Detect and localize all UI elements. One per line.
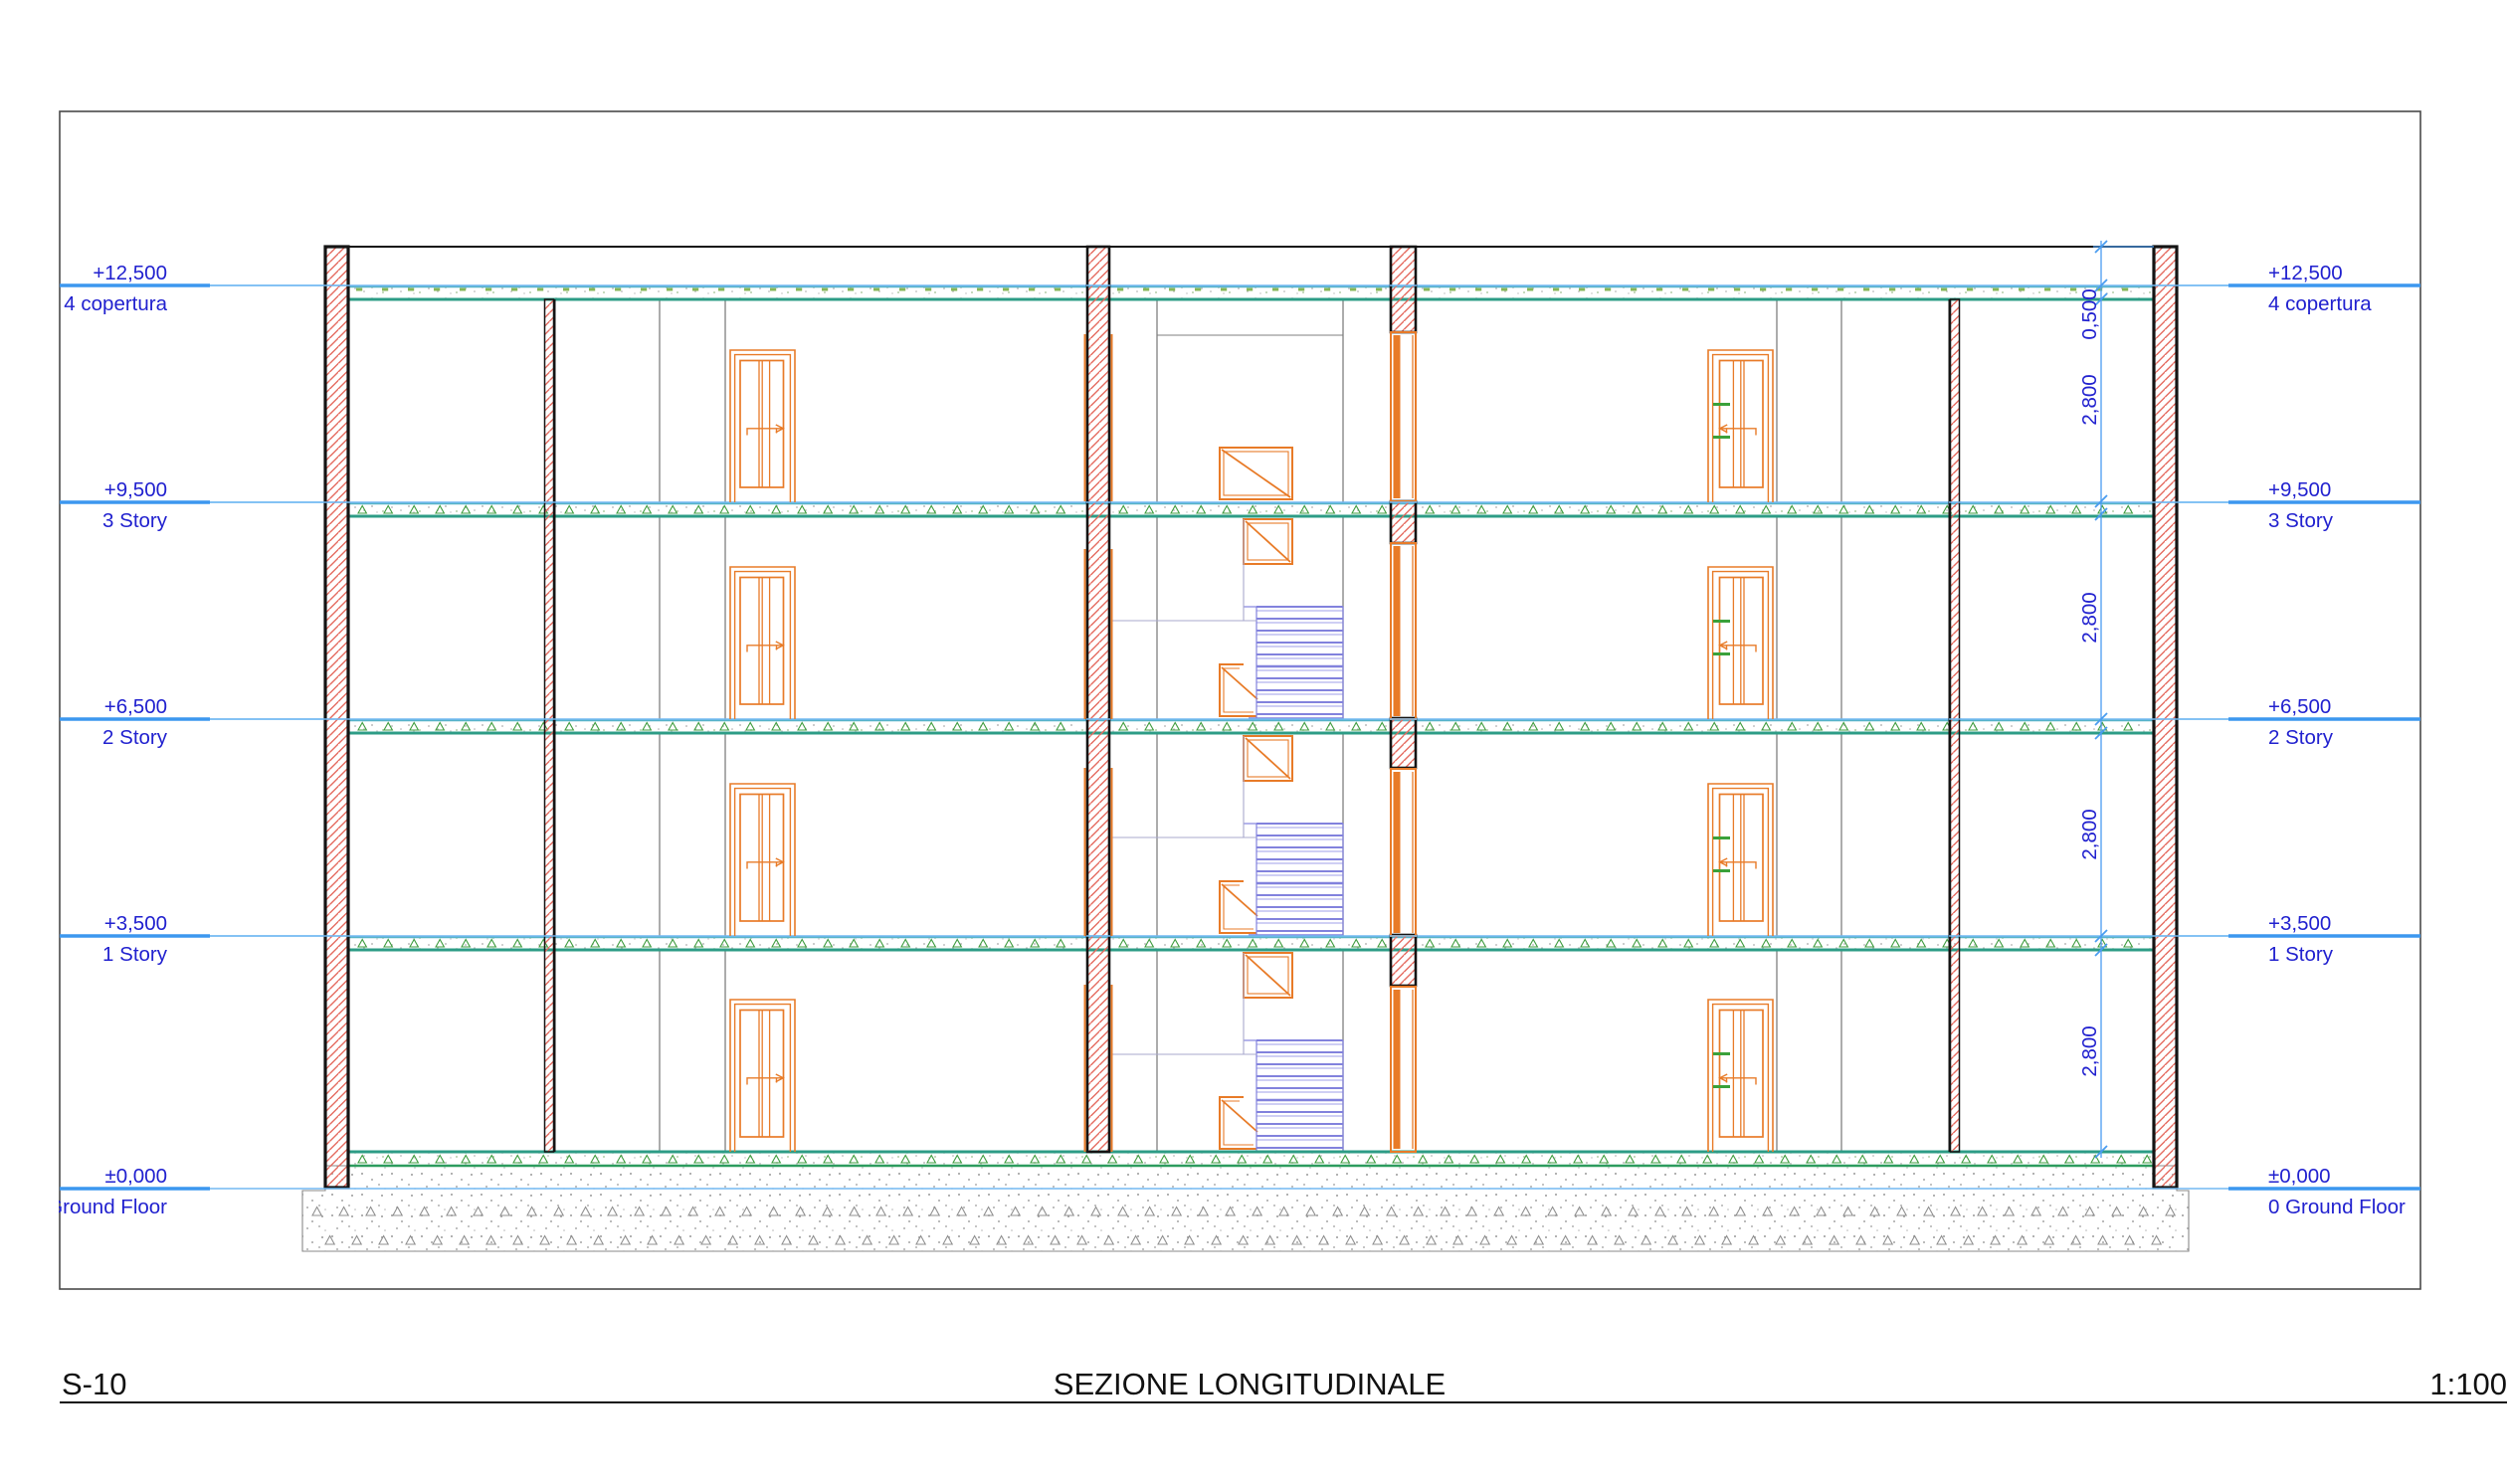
svg-text:0 Ground Floor: 0 Ground Floor (2268, 1196, 2406, 1218)
svg-text:SEZIONE LONGITUDINALE: SEZIONE LONGITUDINALE (1054, 1367, 1446, 1401)
svg-text:±0,000: ±0,000 (104, 1165, 167, 1188)
svg-text:+9,500: +9,500 (2268, 478, 2331, 501)
svg-text:2 Story: 2 Story (102, 726, 168, 749)
svg-text:+3,500: +3,500 (2268, 912, 2331, 935)
svg-text:3 Story: 3 Story (102, 509, 168, 532)
svg-text:2,800: 2,800 (2078, 1025, 2101, 1076)
svg-text:1 Story: 1 Story (102, 943, 168, 966)
svg-text:1:100: 1:100 (2429, 1367, 2507, 1401)
svg-text:2,800: 2,800 (2078, 374, 2101, 425)
svg-text:+12,500: +12,500 (2268, 262, 2343, 284)
svg-text:S-10: S-10 (62, 1367, 126, 1401)
svg-text:±0,000: ±0,000 (2268, 1165, 2331, 1188)
svg-text:+6,500: +6,500 (2268, 695, 2331, 718)
svg-text:4 copertura: 4 copertura (2268, 292, 2372, 315)
svg-text:2,800: 2,800 (2078, 592, 2101, 643)
svg-text:+3,500: +3,500 (104, 912, 167, 935)
svg-text:0,500: 0,500 (2078, 288, 2101, 339)
svg-text:+12,500: +12,500 (93, 262, 167, 284)
svg-text:2 Story: 2 Story (2268, 726, 2334, 749)
svg-text:4 copertura: 4 copertura (64, 292, 167, 315)
svg-text:+6,500: +6,500 (104, 695, 167, 718)
svg-text:1 Story: 1 Story (2268, 943, 2334, 966)
svg-text:+9,500: +9,500 (104, 478, 167, 501)
svg-text:2,800: 2,800 (2078, 809, 2101, 859)
svg-text:3 Story: 3 Story (2268, 509, 2334, 532)
